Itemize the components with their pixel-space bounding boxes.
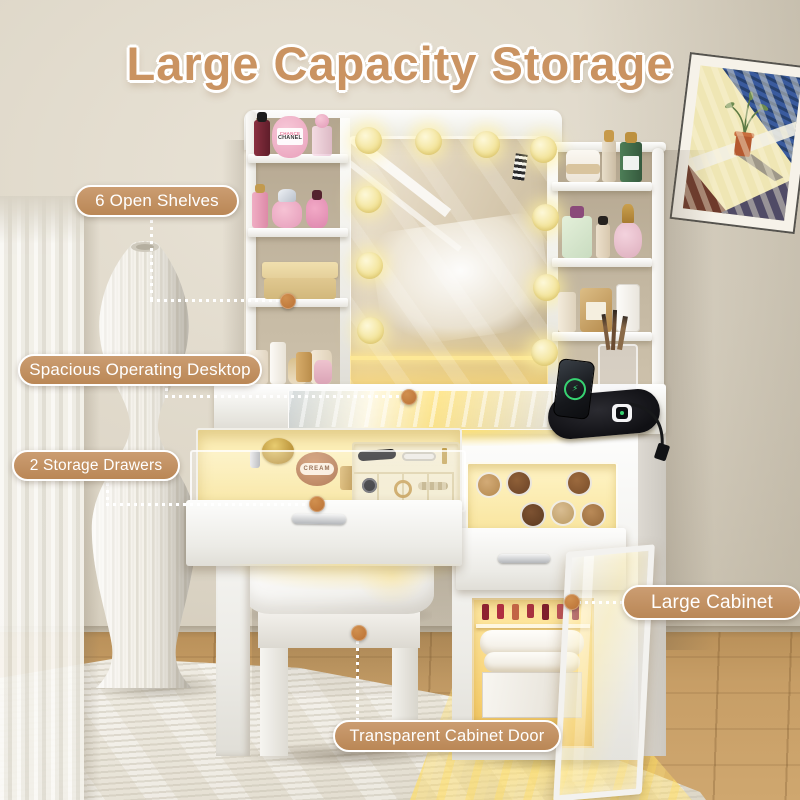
callout-endpoint-dot: [309, 496, 325, 512]
stool-base-band: [258, 612, 420, 648]
callout-pill-open-shelves: 6 Open Shelves: [75, 185, 239, 217]
lipstick: [542, 604, 549, 620]
led-bulb: [357, 317, 384, 344]
makeup-compact: [520, 502, 546, 528]
callout-pill-large-cabinet: Large Cabinet: [622, 585, 800, 620]
led-bulb: [531, 339, 558, 366]
main-drawer-front: [186, 500, 462, 566]
perfume-bottle-clear: [312, 126, 332, 156]
makeup-compact: [536, 472, 558, 494]
led-bulb: [355, 186, 382, 213]
right-drawer-handle: [498, 554, 550, 563]
charging-ring: ⚡: [563, 377, 588, 402]
lipstick: [512, 604, 519, 620]
callout-endpoint-dot: [280, 293, 296, 309]
makeup-compact: [550, 500, 576, 526]
makeup-compact: [506, 470, 532, 496]
mini-perfume-amber: [296, 352, 312, 382]
shelf-board: [552, 332, 652, 341]
led-bulb: [355, 127, 382, 154]
callout-connector-line: [150, 299, 282, 302]
callout-label: 2 Storage Drawers: [30, 457, 163, 475]
sheer-curtain: [0, 196, 84, 800]
callout-endpoint-dot: [401, 389, 417, 405]
callout-pill-storage-drawers: 2 Storage Drawers: [12, 450, 180, 481]
charging-phone: ⚡: [553, 358, 596, 420]
callout-connector-line: [356, 641, 359, 721]
callout-endpoint-dot: [351, 625, 367, 641]
dropper-gold-cap: [604, 130, 614, 142]
lipstick: [497, 604, 504, 619]
perfume-cap-black: [257, 112, 267, 122]
smartwatch-indicator: [620, 411, 624, 415]
cream-pump-bottle: [558, 292, 576, 332]
mini-jar-pink: [314, 360, 332, 384]
vanity-left-wall-shadow: [222, 140, 244, 390]
product-showcase-scene: CHANCE CHANEL: [0, 0, 800, 800]
beige-bottle-cap: [598, 216, 608, 225]
white-tall-bottle: [616, 284, 640, 332]
perfume-label: CHANCE CHANEL: [277, 128, 303, 145]
callout-label: Large Cabinet: [651, 592, 773, 614]
perfume-label-bottom-text: CHANEL: [278, 136, 302, 142]
shelf-board: [552, 182, 652, 191]
makeup-compact: [580, 502, 606, 528]
callout-pill-operating-desktop: Spacious Operating Desktop: [18, 354, 262, 386]
perfume-cap-gold: [255, 184, 265, 193]
perfume-bottle-pink-tall: [252, 192, 268, 228]
drawer-underglow: [230, 564, 460, 590]
led-bulb: [356, 252, 383, 279]
door-glass-highlight: [572, 556, 594, 783]
serum-gold-cap: [625, 132, 637, 143]
right-drawer-interior: [466, 462, 618, 538]
dropper-bottle: [602, 140, 616, 182]
jar-label-band: [566, 164, 600, 174]
makeup-compact: [476, 472, 502, 498]
mint-square-bottle: [562, 216, 592, 258]
pink-flask: [614, 222, 642, 258]
perfume-cap-dark: [312, 190, 322, 200]
led-bulb: [532, 204, 559, 231]
callout-connector-line: [106, 503, 312, 506]
main-drawer-handle: [292, 514, 346, 525]
callout-endpoint-dot: [564, 594, 580, 610]
perfume-bottle-pink-darkcap: [306, 198, 328, 228]
beige-mini-bottle: [596, 224, 610, 258]
callout-pill-transparent-cabinet-door: Transparent Cabinet Door: [333, 720, 561, 752]
wooden-box-base: [264, 278, 336, 299]
shelf-board: [552, 258, 652, 267]
right-tower-post: [652, 148, 664, 386]
callout-connector-line: [165, 395, 405, 398]
wooden-box-lid: [262, 262, 338, 278]
led-bulb: [415, 128, 442, 155]
perfume-ball-cap: [315, 114, 329, 128]
callout-connector-line: [150, 213, 153, 301]
makeup-compact: [566, 470, 592, 496]
makeup-compact: [490, 500, 512, 522]
cream-bottle: [270, 342, 286, 384]
serum-label: [623, 156, 639, 170]
brush-cup: [598, 344, 638, 394]
lipstick: [527, 604, 534, 618]
charging-bolt-icon: ⚡: [571, 384, 578, 394]
shelf-board: [248, 228, 348, 237]
jar-crystal-cap: [272, 200, 302, 228]
stool-left-leg: [260, 646, 288, 756]
curtain-top-fade: [0, 196, 84, 244]
page-title: Large Capacity Storage: [0, 36, 800, 91]
perfume-bottle-maroon: [254, 120, 270, 156]
transparent-cabinet-door: [553, 544, 655, 800]
callout-label: Spacious Operating Desktop: [29, 360, 251, 380]
callout-connector-line: [578, 601, 624, 604]
crystal-cap: [278, 189, 296, 202]
mint-bottle-cap: [570, 206, 584, 218]
gold-cone-cap: [622, 204, 634, 223]
led-bulb: [530, 136, 557, 163]
callout-label: Transparent Cabinet Door: [350, 727, 545, 746]
lipstick: [482, 604, 489, 620]
led-bulb: [473, 131, 500, 158]
led-bulb: [533, 274, 560, 301]
callout-label: 6 Open Shelves: [95, 191, 219, 211]
smartwatch: [612, 404, 632, 422]
